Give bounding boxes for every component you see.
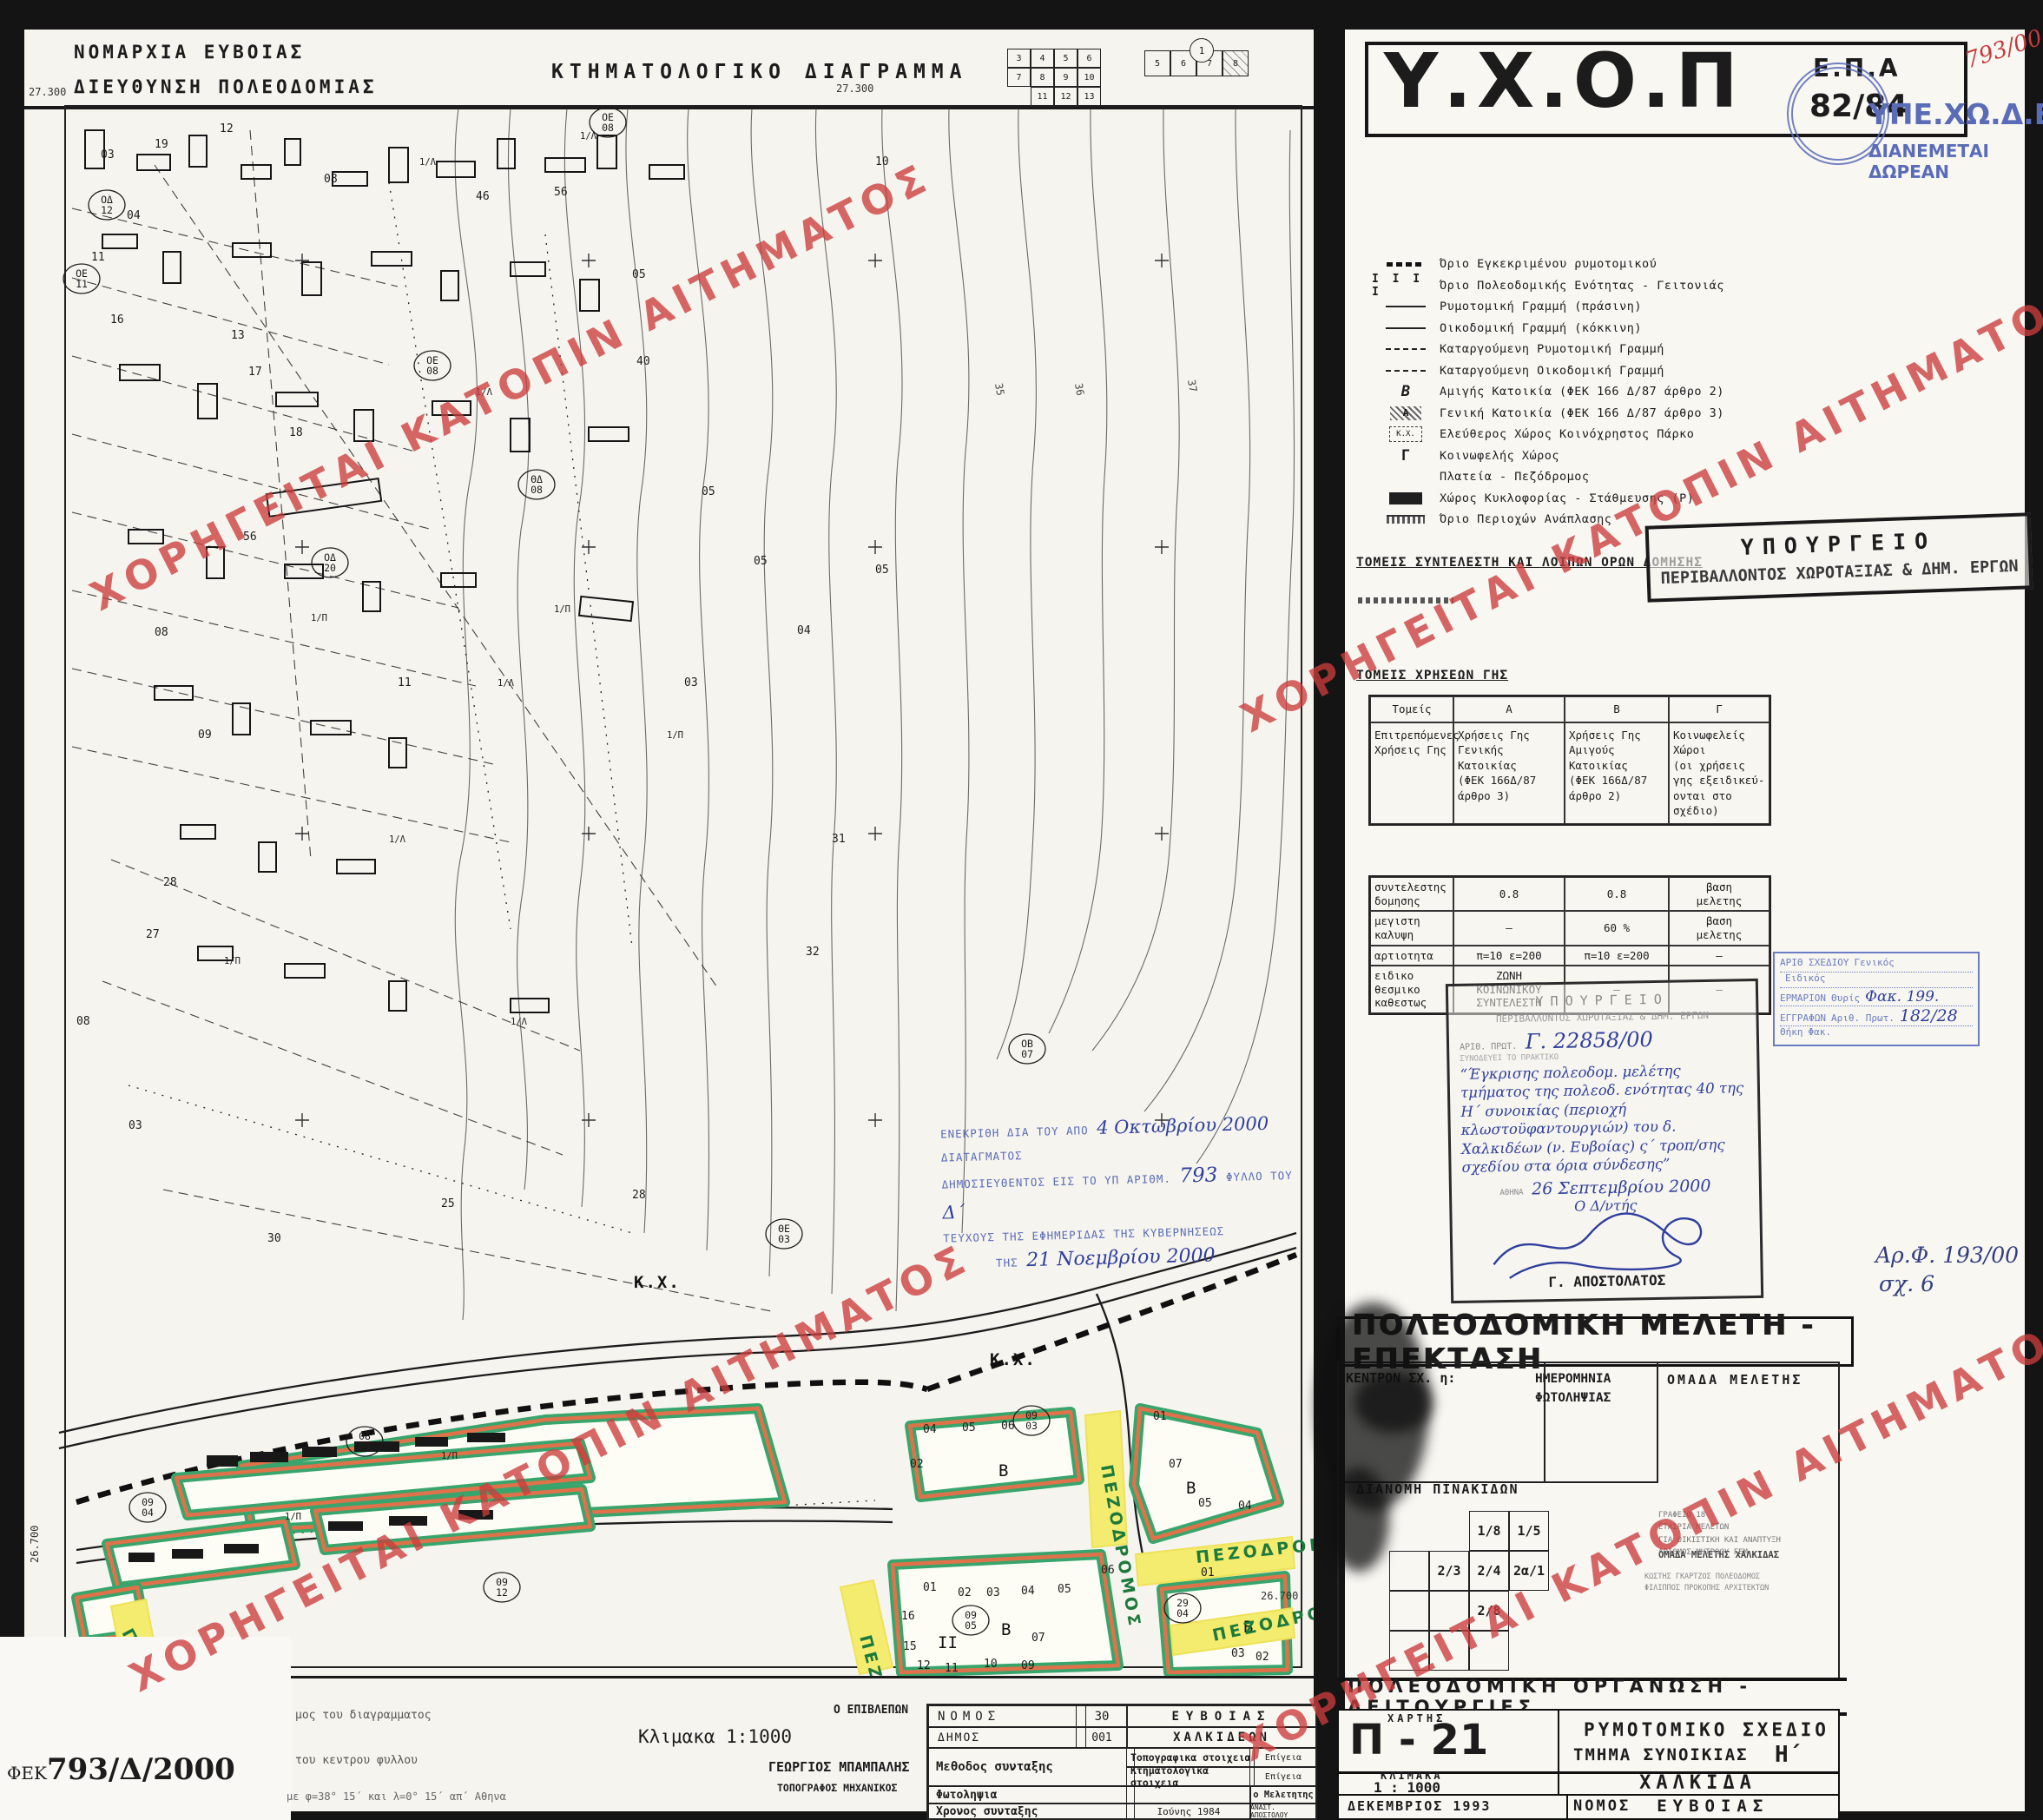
svg-text:1/Π: 1/Π <box>441 1451 458 1461</box>
archive-stamp: ΑΡΙΘ ΣΧΕΔΙΟΥΓενικός Ειδικός ΕΡΜΑΡΙΟΝΘυρί… <box>1773 952 1980 1046</box>
plan-section: ΤΜΗΜΑ ΣΥΝΟΙΚΙΑΣ <box>1573 1745 1749 1764</box>
svg-text:17: 17 <box>248 366 262 379</box>
nomos-label: ΝΟΜΟΣ <box>1573 1797 1631 1815</box>
legend-item: Ι Ι Ι ΙΌριο Πολεοδομικής Ενότητας - Γειτ… <box>1372 275 1980 297</box>
svg-text:08: 08 <box>76 1015 90 1028</box>
svg-text:07: 07 <box>1169 1458 1183 1471</box>
fek-number: 793/Δ/2000 <box>47 1752 235 1787</box>
svg-text:ΟΔ20: ΟΔ20 <box>324 551 336 574</box>
landuse-table: Τομείς Α Β Γ Επιτρεπόμενες Χρήσεις Γης Χ… <box>1368 695 1771 826</box>
pinakides-grid: 1/81/5 2/32/42α/1 2/8 <box>1389 1511 1549 1671</box>
svg-text:26.700: 26.700 <box>1261 1590 1298 1602</box>
svg-text:05: 05 <box>875 564 889 577</box>
stamp-hand-3: Δ΄ <box>942 1202 965 1223</box>
legend-item: Κ.Χ.Ελεύθερος Χώρος Κοινόχρηστος Πάρκο <box>1372 424 1980 445</box>
dotted-mark <box>1358 597 1453 603</box>
svg-text:03: 03 <box>986 1586 1000 1599</box>
sheet-index-grid-right: 1 567 8 <box>1144 50 1249 76</box>
svg-text:Β: Β <box>1186 1479 1196 1498</box>
survey-time-value: Ιούνης 1984 <box>1126 1803 1251 1820</box>
svg-text:1/Λ: 1/Λ <box>419 157 437 168</box>
svg-text:0803: 0803 <box>359 1430 371 1453</box>
survey-time-label: Χρονος συνταξης <box>928 1803 1135 1820</box>
svg-text:0903: 0903 <box>1025 1409 1038 1432</box>
survey-ktim-value: Επίγεια <box>1249 1766 1317 1787</box>
parking-area-icon <box>1372 492 1440 504</box>
svg-text:04: 04 <box>1238 1500 1252 1513</box>
svg-text:1/Λ: 1/Λ <box>511 1017 528 1027</box>
svg-text:30: 30 <box>267 1232 281 1245</box>
map-legend: Όριο Εγκεκριμένου ρυμοτομικού Ι Ι Ι ΙΌρι… <box>1372 254 1980 531</box>
svg-text:04: 04 <box>797 624 811 637</box>
stamp-hand-2: 793 <box>1179 1164 1218 1188</box>
prefecture-label: ΝΟΜΑΡΧΙΑ ΕΥΒΟΙΑΣ <box>74 42 305 63</box>
svg-text:1/Λ: 1/Λ <box>476 387 493 398</box>
svg-text:28: 28 <box>163 876 177 889</box>
survey-ktim-label: Κτηματολογικα στοιχεια <box>1126 1766 1255 1787</box>
legend-item: Ρυμοτομική Γραμμή (πράσινη) <box>1372 296 1980 318</box>
index-circle: 1 <box>1190 38 1214 63</box>
landuse-header: Α <box>1453 696 1565 722</box>
svg-text:1/Π: 1/Π <box>667 730 683 741</box>
svg-text:1/Π: 1/Π <box>285 1512 301 1522</box>
svg-text:05: 05 <box>754 555 768 568</box>
svg-text:04: 04 <box>923 1423 937 1436</box>
stamp-hand-1: 4 Οκτωβρίου 2000 <box>1097 1113 1269 1138</box>
approval-subject: “Έγκρισης πολεοδομ. μελέτης τμήματος της… <box>1460 1060 1748 1177</box>
city-name: ΧΑΛΚΙΔΑ <box>1558 1771 1838 1796</box>
svg-text:II: II <box>938 1633 958 1652</box>
landuse-header: Γ <box>1669 696 1770 722</box>
svg-text:05: 05 <box>702 485 715 498</box>
landuse-col-c: Κοινωφελείς Χώροι (οι χρήσεις γης εξειδι… <box>1669 722 1770 824</box>
approval-place: ΑΘΗΝΑ <box>1499 1188 1523 1197</box>
svg-text:56: 56 <box>243 531 257 544</box>
svg-text:15: 15 <box>903 1640 917 1653</box>
svg-text:08: 08 <box>155 626 168 639</box>
regeneration-boundary-icon <box>1372 515 1440 524</box>
svg-text:05: 05 <box>1058 1583 1071 1596</box>
svg-text:27.300: 27.300 <box>29 86 66 98</box>
legend-item: ΒΑμιγής Κατοικία (ΦΕΚ 166 Δ/87 άρθρο 2) <box>1372 381 1980 403</box>
plan-type: ΡΥΜΟΤΟΜΙΚΟ ΣΧΕΔΙΟ <box>1584 1719 1829 1740</box>
svg-text:2904: 2904 <box>1176 1597 1189 1619</box>
svg-text:05: 05 <box>962 1421 976 1434</box>
arch-r1a: Γενικός <box>1854 957 1894 968</box>
svg-text:04: 04 <box>1021 1585 1035 1598</box>
study-firm-lines: ΓΡΑΦΕΙΟ 18 ΕΤΑΙΡΙΑ ΜΕΛΕΤΩΝ ΓΙΑ ΟΙΚΙΣΤΙΚΗ… <box>1658 1509 1781 1560</box>
svg-text:01: 01 <box>1201 1566 1215 1579</box>
legend-item: ΑΓενική Κατοικία (ΦΕΚ 166 Δ/87 άρθρο 3) <box>1372 403 1980 425</box>
svg-text:ΟΕ08: ΟΕ08 <box>426 354 438 377</box>
arch-r2b: Φακ. 199. <box>1865 988 1939 1006</box>
svg-text:02: 02 <box>1255 1651 1269 1664</box>
svg-text:05: 05 <box>632 268 646 281</box>
svg-text:28: 28 <box>632 1189 646 1202</box>
landuse-row-label: Επιτρεπόμενες Χρήσεις Γης <box>1370 722 1453 824</box>
landuse-col-a: Χρήσεις Γης Γενικής Κατοικίας (ΦΕΚ 166Δ/… <box>1453 722 1565 824</box>
svg-text:09: 09 <box>198 729 212 742</box>
survey-table: ΝΟΜΟΣ 30 ΕΥΒΟΙΑΣ ΔΗΜΟΣ 001 ΧΑΛΚΙΔΕΩΝ Μεθ… <box>926 1704 1317 1820</box>
svg-text:31: 31 <box>832 833 846 846</box>
svg-text:ΟΔ12: ΟΔ12 <box>101 194 113 216</box>
svg-text:10: 10 <box>875 155 889 168</box>
svg-text:ΘΔ08: ΘΔ08 <box>531 473 543 496</box>
legend-item: Όριο Εγκεκριμένου ρυμοτομικού <box>1372 254 1980 275</box>
approval-proto-label: ΑΡΙΘ. ΠΡΩΤ. <box>1460 1042 1517 1052</box>
file-note: Αρ.Φ. 193/00 σχ. 6 <box>1875 1242 2019 1298</box>
survey-dimos-code: 001 <box>1076 1726 1128 1749</box>
stamp-print-2: ΔΙΑΤΑΓΜΑΤΟΣ <box>941 1149 1023 1164</box>
stamp-print-6: ΤΗΣ <box>996 1256 1018 1270</box>
svg-text:27: 27 <box>146 928 160 941</box>
svg-text:03: 03 <box>684 676 698 689</box>
approval-proto: Γ. 22858/00 <box>1526 1027 1653 1054</box>
fek-reference: ΦΕΚ793/Δ/2000 <box>7 1752 235 1787</box>
survey-photo-value <box>1126 1785 1251 1804</box>
general-residence-icon: Α <box>1372 406 1440 420</box>
survey-dimos-label: ΔΗΜΟΣ <box>928 1726 1086 1749</box>
map-approval-stamp: ΕΝΕΚΡΙΘΗ ΔΙΑ ΤΟΥ ΑΠΟ 4 Οκτωβρίου 2000 ΔΙ… <box>940 1108 1318 1278</box>
ypexode-label: ΥΠΕ.ΧΩ.Δ.Ε. <box>1868 97 2043 131</box>
svg-text:Β: Β <box>1001 1620 1011 1639</box>
abolished-street-line-icon <box>1372 348 1440 350</box>
plan-date: ΔΕΚΕΜΒΡΙΟΣ 1993 <box>1339 1794 1568 1818</box>
arch-r3a: Αριθ. Πρωτ. <box>1831 1012 1895 1024</box>
pure-residence-icon: Β <box>1372 383 1440 400</box>
corner-note-3: με φ=38° 15΄ και λ=0° 15΄ απ΄ Αθηνα <box>287 1790 506 1803</box>
svg-text:1/Λ: 1/Λ <box>580 131 597 142</box>
legend-item: Οικοδομική Γραμμή (κόκκινη) <box>1372 318 1980 340</box>
svg-text:03: 03 <box>101 148 115 162</box>
title-block: ΧΑΡΤΗΣ Π - 21 ΡΥΜΟΤΟΜΙΚΟ ΣΧΕΔΙΟ ΤΜΗΜΑ ΣΥ… <box>1337 1709 1840 1820</box>
arch-r2a: Θυρίς <box>1831 992 1860 1004</box>
scanned-cadastral-map-page: ΝΟΜΑΡΧΙΑ ΕΥΒΟΙΑΣ ΔΙΕΥΘΥΝΣΗ ΠΟΛΕΟΔΟΜΙΑΣ Κ… <box>0 0 2043 1820</box>
svg-text:05: 05 <box>1198 1497 1212 1510</box>
svg-text:35: 35 <box>992 382 1006 397</box>
legend-item: Καταργούμενη Οικοδομική Γραμμή <box>1372 360 1980 382</box>
svg-text:13: 13 <box>231 329 245 342</box>
arch-r2-label: ΕΡΜΑΡΙΟΝ <box>1780 992 1826 1004</box>
distributed-free-label: ΔΙΑΝΕΜΕΤΑΙ ΔΩΡΕΑΝ <box>1868 141 2043 182</box>
svg-text:Κ.Χ.: Κ.Χ. <box>634 1273 681 1292</box>
parcel-boundary-lines <box>72 130 771 1311</box>
svg-text:12: 12 <box>917 1659 931 1672</box>
svg-text:09: 09 <box>1021 1659 1035 1672</box>
nomos-value: ΕΥΒΟΙΑΣ <box>1657 1797 1769 1816</box>
svg-text:06: 06 <box>1001 1420 1015 1433</box>
svg-text:1/Λ: 1/Λ <box>498 678 515 689</box>
svg-text:Β: Β <box>998 1461 1008 1480</box>
ministry-line-1: ΥΠΟΥΡΓΕΙΟ <box>1654 525 2023 564</box>
cadastral-map: 27.30027.30026.70026.700353637Κ.Χ.Κ.Χ.ΒΒ… <box>24 78 1314 1676</box>
supervisor-name: ΓΕΩΡΓΙΟΣ ΜΠΑΜΠΑΛΗΣ <box>768 1759 910 1775</box>
unit-boundary-icon: Ι Ι Ι Ι <box>1372 273 1440 299</box>
svg-text:37: 37 <box>1185 379 1199 393</box>
survey-dimos-value: ΧΑΛΚΙΔΕΩΝ <box>1126 1726 1317 1749</box>
svg-text:1/Π: 1/Π <box>554 604 570 615</box>
survey-grid-crosses <box>295 254 1169 1127</box>
svg-text:08: 08 <box>324 173 338 186</box>
arch-r4b: Φακ. <box>1809 1026 1832 1038</box>
stamp-print-5: ΤΕΥΧΟΥΣ ΤΗΣ ΕΦΗΜΕΡΙΔΑΣ ΤΗΣ ΚΥΒΕΡΝΗΣΕΩΣ <box>943 1224 1224 1244</box>
svg-text:ΟΕ11: ΟΕ11 <box>76 267 88 290</box>
corner-note-2: του κεντρου φυλλου <box>295 1754 418 1767</box>
fek-label: ΦΕΚ <box>7 1763 47 1784</box>
study-cell-photo-date: ΗΜΕΡΟΜΗΝΙΑ ΦΩΤΟΛΗΨΙΑΣ <box>1532 1363 1658 1483</box>
svg-text:25: 25 <box>441 1197 455 1210</box>
approval-date: 26 Σεπτεμβρίου 2000 <box>1532 1176 1711 1198</box>
arch-r1-label: ΑΡΙΘ ΣΧΕΔΙΟΥ <box>1780 957 1849 968</box>
corner-box <box>0 1637 291 1820</box>
landuse-col-b: Χρήσεις Γης Αμιγούς Κατοικίας (ΦΕΚ 166Δ/… <box>1565 722 1669 824</box>
arch-r4a: Θήκη <box>1780 1026 1803 1038</box>
svg-text:26.700: 26.700 <box>29 1526 41 1563</box>
study-names: ΚΩΣΤΗΣ ΓΚΑΡΤΖΟΣ ΠΟΛΕΟΔΟΜΟΣ ΦΙΛΙΠΠΟΣ ΠΡΟΚ… <box>1644 1572 1769 1594</box>
scan-border-left <box>0 30 24 1641</box>
svg-text:11: 11 <box>945 1662 959 1675</box>
survey-nomos-label: ΝΟΜΟΣ <box>928 1705 1086 1728</box>
svg-text:Κ.Χ.: Κ.Χ. <box>990 1350 1037 1369</box>
supervisor-label: Ο ΕΠΙΒΛΕΠΩΝ <box>834 1704 908 1717</box>
abolished-building-line-icon <box>1372 370 1440 372</box>
svg-text:11: 11 <box>398 676 412 689</box>
ministry-stamp-box: ΥΠΟΥΡΓΕΙΟ ΠΕΡΙΒΑΛΛΟΝΤΟΣ ΧΩΡΟΤΑΞΙΑΣ & ΔΗΜ… <box>1645 512 2033 602</box>
svg-text:1/Λ: 1/Λ <box>389 834 406 845</box>
legend-item: Πλατεία - Πεζόδρομος <box>1372 466 1980 488</box>
building-line-icon <box>1372 327 1440 329</box>
approved-plan-boundary-icon <box>1372 262 1440 267</box>
svg-text:16: 16 <box>110 313 124 326</box>
svg-text:19: 19 <box>155 138 168 151</box>
public-open-space-icon: Κ.Χ. <box>1372 426 1440 442</box>
svg-text:16: 16 <box>901 1610 915 1623</box>
scan-border-top <box>0 0 2043 30</box>
arch-r1b: Ειδικός <box>1785 973 1825 984</box>
svg-text:06: 06 <box>1101 1564 1115 1577</box>
survey-meletitis-name: ΑΝΑΣΤ. ΑΠΟΣΤΟΛΟΥ <box>1249 1803 1317 1820</box>
svg-text:0904: 0904 <box>142 1496 154 1519</box>
landuse-header: Β <box>1565 696 1669 722</box>
survey-photo-label: Φωτοληψια <box>928 1785 1135 1804</box>
landuse-section-heading: ΤΟΜΕΙΣ ΧΡΗΣΕΩΝ ΓΗΣ <box>1356 669 1508 682</box>
survey-method-label: Μεθοδος συνταξης <box>928 1747 1135 1787</box>
svg-text:02: 02 <box>910 1458 924 1471</box>
approval-stamp-box: ΥΠΟΥΡΓΕΙΟ ΠΕΡΙΒΑΛΛΟΝΤΟΣ ΧΩΡΟΤΑΞΙΑΣ & ΔΗΜ… <box>1446 979 1763 1303</box>
study-cell-team: ΟΜΑΔΑ ΜΕΛΕΤΗΣ <box>1651 1363 1861 1407</box>
stamp-print-1: ΕΝΕΚΡΙΘΗ ΔΙΑ ΤΟΥ ΑΠΟ <box>940 1124 1089 1140</box>
approval-header-2: ΠΕΡΙΒΑΛΛΟΝΤΟΣ ΧΩΡΟΤΑΞΙΑΣ & ΔΗΜ. ΕΡΓΩΝ <box>1459 1009 1745 1025</box>
survey-nomos-value: ΕΥΒΟΙΑΣ <box>1126 1705 1317 1728</box>
plan-section-letter: Η΄ <box>1775 1742 1802 1768</box>
svg-text:18: 18 <box>289 426 303 439</box>
svg-text:46: 46 <box>476 190 490 203</box>
svg-text:0912: 0912 <box>496 1576 508 1599</box>
svg-text:03: 03 <box>129 1119 142 1132</box>
map-code: Π - 21 <box>1349 1716 1488 1764</box>
svg-text:07: 07 <box>1031 1632 1045 1645</box>
svg-text:01: 01 <box>1153 1410 1167 1423</box>
svg-text:10: 10 <box>984 1658 998 1671</box>
stamp-print-3: ΔΗΜΟΣΙΕΥΘΕΝΤΟΣ ΕΙΣ ΤΟ ΥΠ ΑΡΙΘΜ. <box>941 1172 1171 1191</box>
svg-text:ΟΕ08: ΟΕ08 <box>602 111 614 134</box>
svg-text:0905: 0905 <box>965 1609 977 1632</box>
svg-text:ΟΒ07: ΟΒ07 <box>1021 1038 1033 1060</box>
arch-r3b: 182/28 <box>1900 1006 1958 1025</box>
svg-text:40: 40 <box>636 355 650 368</box>
stamp-print-4: ΦΥΛΛΟ ΤΟΥ <box>1226 1169 1293 1184</box>
survey-topo-value: Επίγεια <box>1249 1747 1317 1768</box>
svg-text:02: 02 <box>958 1586 972 1599</box>
svg-text:04: 04 <box>127 209 141 222</box>
survey-nomos-code: 30 <box>1076 1705 1128 1728</box>
stamp-hand-4: 21 Νοεμβρίου 2000 <box>1026 1245 1216 1272</box>
svg-text:56: 56 <box>554 186 568 199</box>
approval-header-1: ΥΠΟΥΡΓΕΙΟ <box>1459 990 1745 1011</box>
map-scale-note: Κλιμακα 1:1000 <box>638 1726 792 1747</box>
svg-text:11: 11 <box>91 251 105 264</box>
svg-text:ΘΕ03: ΘΕ03 <box>778 1223 790 1245</box>
legend-item: Καταργούμενη Ρυμοτομική Γραμμή <box>1372 339 1980 360</box>
ministry-line-2: ΠΕΡΙΒΑΛΛΟΝΤΟΣ ΧΩΡΟΤΑΞΙΑΣ & ΔΗΜ. ΕΡΓΩΝ <box>1655 557 2023 589</box>
communal-space-icon: Γ <box>1372 447 1440 465</box>
svg-text:03: 03 <box>1231 1647 1245 1660</box>
svg-text:32: 32 <box>806 946 820 959</box>
arch-r3-label: ΕΓΓΡΑΦΩΝ <box>1780 1012 1826 1024</box>
supervisor-title: ΤΟΠΟΓΡΑΦΟΣ ΜΗΧΑΝΙΚΟΣ <box>777 1782 897 1794</box>
landuse-header: Τομείς <box>1370 696 1453 722</box>
svg-text:01: 01 <box>923 1581 937 1594</box>
legend-item: ΓΚοινωφελής Χώρος <box>1372 445 1980 467</box>
scan-border-right <box>2025 0 2043 1820</box>
agency-name: Υ.Χ.Ο.Π <box>1384 38 1743 125</box>
svg-text:1/Π: 1/Π <box>224 956 241 966</box>
svg-text:36: 36 <box>1072 382 1086 397</box>
svg-text:27.300: 27.300 <box>836 82 873 95</box>
svg-text:1/Π: 1/Π <box>311 613 327 623</box>
survey-meletitis-label: ο Μελετητης <box>1249 1785 1317 1804</box>
legend-item: Χώρος Κυκλοφορίας - Στάθμευσης (Ρ) <box>1372 488 1980 510</box>
street-line-icon <box>1372 306 1440 307</box>
svg-text:12: 12 <box>220 122 234 135</box>
corner-note-1: μος του διαγραμματος <box>295 1709 432 1722</box>
